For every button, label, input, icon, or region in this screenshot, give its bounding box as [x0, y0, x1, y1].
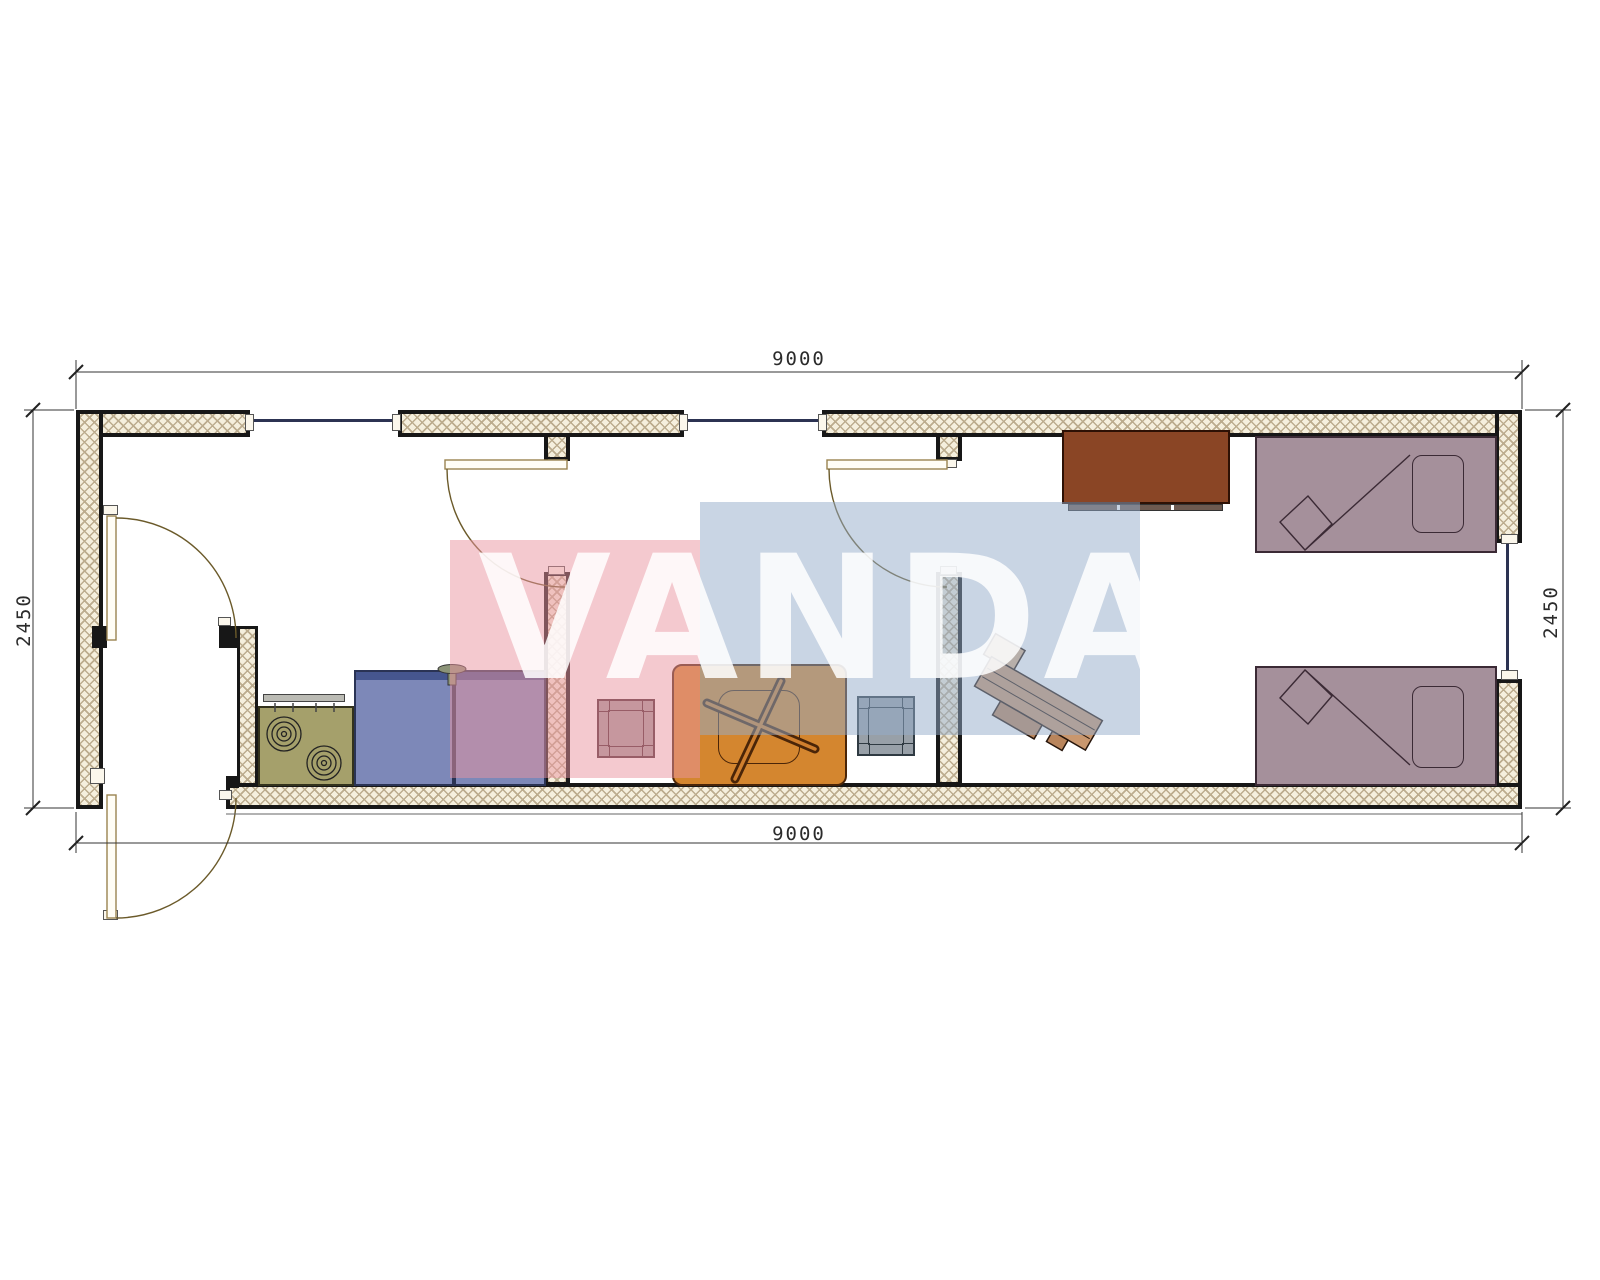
floor-plan-canvas: VANDA 9000 9000 2450 2450	[0, 0, 1600, 1280]
burner-icon	[267, 717, 341, 780]
blanket-fold	[1280, 455, 1410, 765]
shelf-bracket-ticks	[275, 703, 334, 712]
dim-right: 2450	[1540, 585, 1562, 639]
watermark-text: VANDA	[478, 544, 1182, 694]
dim-left: 2450	[13, 593, 35, 647]
dim-top: 9000	[772, 348, 826, 370]
dim-bottom: 9000	[772, 823, 826, 845]
